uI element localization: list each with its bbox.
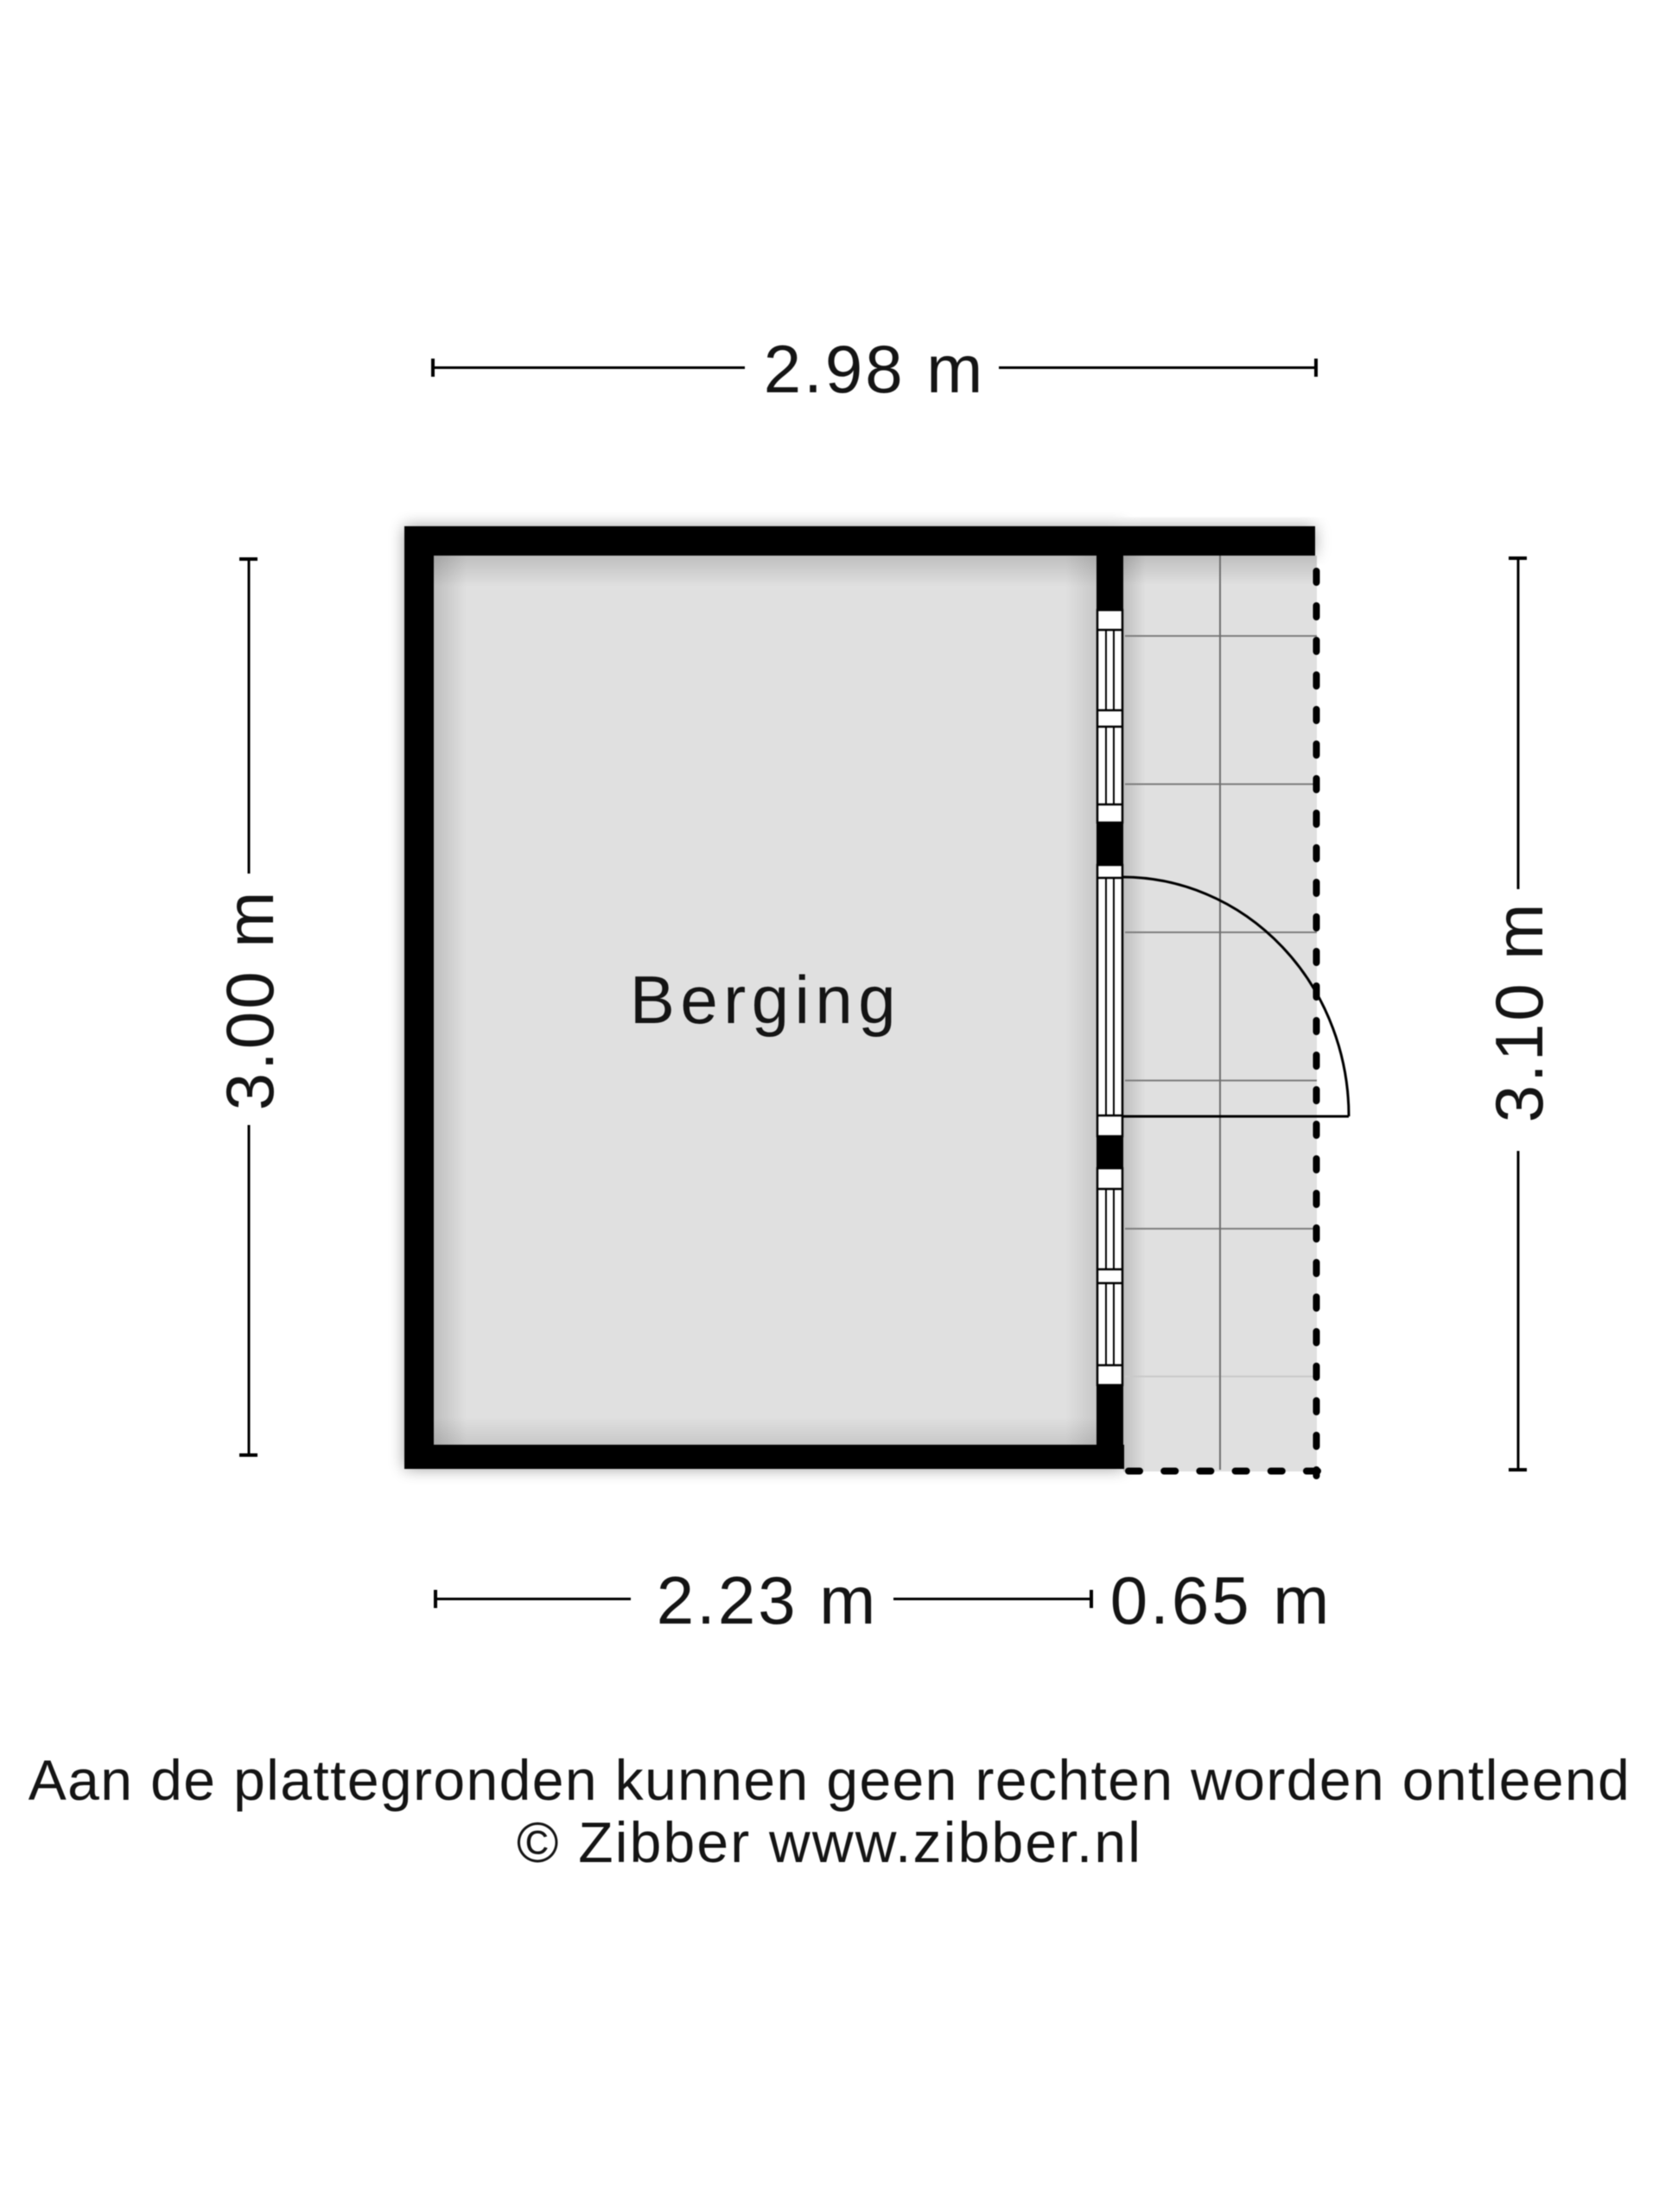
svg-text:3.00 m: 3.00 m (212, 889, 288, 1110)
svg-text:2.98 m: 2.98 m (764, 331, 985, 407)
svg-text:2.23 m: 2.23 m (657, 1562, 878, 1638)
svg-text:Aan de plattegronden kunnen ge: Aan de plattegronden kunnen geen rechten… (29, 1748, 1630, 1812)
svg-text:Berging: Berging (630, 962, 901, 1038)
svg-text:0.65 m: 0.65 m (1110, 1562, 1332, 1638)
svg-text:© Zibber www.zibber.nl: © Zibber www.zibber.nl (517, 1810, 1142, 1874)
svg-text:3.10 m: 3.10 m (1481, 901, 1557, 1122)
